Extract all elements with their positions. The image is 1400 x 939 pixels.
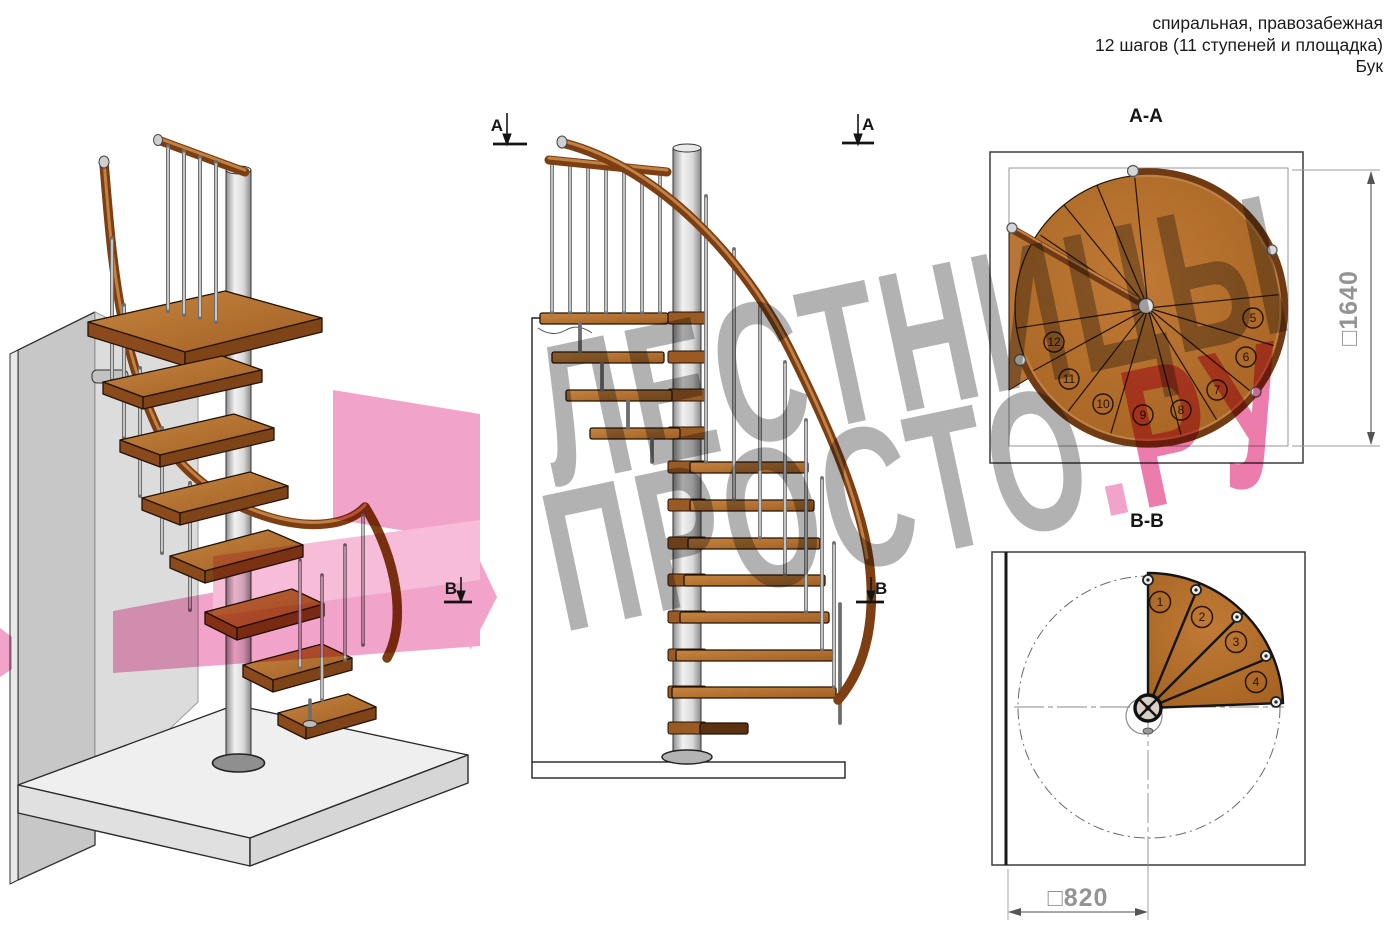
- aa-step-number: 6: [1243, 350, 1250, 364]
- step-count-label: 12 шагов (11 ступеней и площадка): [1095, 35, 1383, 57]
- bb-step-number: 3: [1233, 635, 1240, 649]
- isometric-view: [0, 135, 497, 885]
- staircase-drawing: А А В В А-А: [0, 0, 1400, 939]
- elevation-view: [532, 136, 871, 778]
- section-marker-b-right: В: [856, 577, 887, 602]
- aa-step-number: 11: [1063, 372, 1076, 386]
- aa-center-ball: [1139, 299, 1154, 314]
- aa-step-number: 8: [1178, 403, 1185, 417]
- material-label: Бук: [1095, 56, 1383, 78]
- bb-step-number: 1: [1157, 595, 1164, 609]
- aa-step-number: 9: [1140, 408, 1147, 422]
- drawing-sheet: А А В В А-А: [0, 0, 1400, 939]
- plan-bb-title: В-В: [1130, 511, 1164, 532]
- bb-step-number: 2: [1199, 610, 1206, 624]
- aa-dimension-label: □1640: [1335, 270, 1363, 346]
- stair-type-label: спиральная, правозабежная: [1095, 13, 1383, 35]
- aa-step-number: 12: [1047, 335, 1061, 349]
- section-letter-a: А: [862, 115, 874, 134]
- section-marker-a-right: А: [842, 114, 874, 145]
- section-marker-a-left: А: [491, 113, 527, 145]
- plan-view-aa: А-А: [990, 106, 1380, 463]
- bb-center-post: [1126, 695, 1162, 734]
- plan-view-bb: В-В: [992, 511, 1305, 920]
- title-block: спиральная, правозабежная 12 шагов (11 с…: [1095, 13, 1383, 78]
- aa-step-number: 10: [1096, 397, 1110, 411]
- section-letter-b: В: [875, 579, 887, 598]
- section-letter-a: А: [491, 116, 503, 135]
- plan-aa-title: А-А: [1129, 106, 1163, 127]
- pole-base-flange: [213, 754, 265, 772]
- bb-step-number: 4: [1253, 675, 1260, 689]
- bb-dimension: □820: [1008, 866, 1148, 920]
- elevation-pole: [673, 148, 701, 757]
- aa-step-number: 7: [1214, 383, 1221, 397]
- aa-dimension: □1640: [1292, 170, 1380, 446]
- section-letter-b: В: [445, 579, 457, 598]
- aa-step-number: 5: [1250, 311, 1257, 325]
- bb-dimension-label: □820: [1048, 884, 1109, 912]
- wall-edge-strip: [10, 350, 18, 884]
